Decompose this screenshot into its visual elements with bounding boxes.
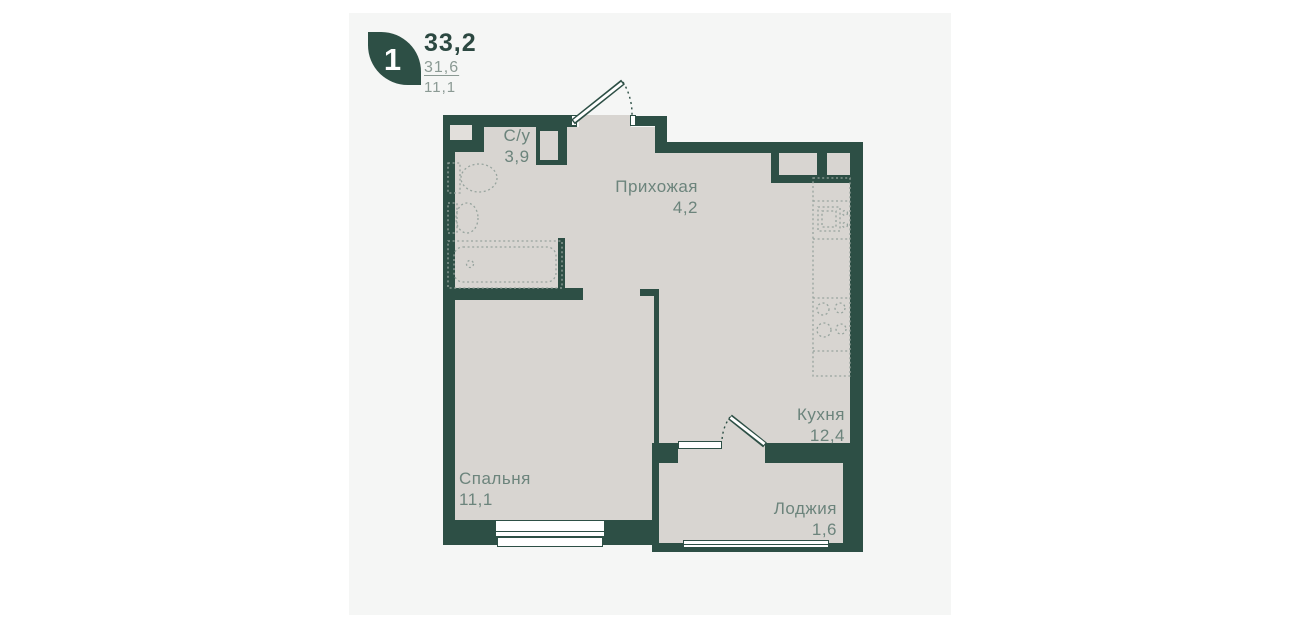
room-label-kitchen: Кухня 12,4 (733, 404, 845, 446)
kitchen-sink-icon (818, 207, 848, 231)
stove-icon (817, 303, 846, 337)
room-area: 11,1 (459, 489, 531, 510)
area-total: 33,2 (424, 31, 477, 56)
room-name: Прихожая (578, 176, 698, 197)
room-area: 4,2 (578, 197, 698, 218)
entrance-door-icon (573, 82, 632, 122)
leaf-rooms-count-icon: 1 (368, 32, 421, 85)
floorplan-card[interactable]: 1 33,2 31,6 11,1 (349, 13, 951, 615)
room-name: Спальня (459, 468, 531, 489)
rooms-count: 1 (384, 42, 401, 78)
room-name: Кухня (733, 404, 845, 425)
kitchen-counter-icon (813, 178, 850, 376)
floor-plan: С/у 3,9 Прихожая 4,2 Кухня 12,4 Спальня … (443, 113, 863, 553)
bathtub-icon (448, 241, 562, 288)
room-label-bedroom: Спальня 11,1 (459, 468, 531, 510)
washbasin-icon (448, 203, 478, 233)
room-name: С/у (487, 125, 547, 146)
room-area: 3,9 (487, 146, 547, 167)
toilet-icon (448, 163, 497, 193)
room-label-loggia: Лоджия 1,6 (725, 498, 837, 540)
page: 1 33,2 31,6 11,1 (0, 0, 1301, 630)
room-area: 12,4 (733, 425, 845, 446)
room-label-bathroom: С/у 3,9 (487, 125, 547, 167)
room-area: 1,6 (725, 519, 837, 540)
room-name: Лоджия (725, 498, 837, 519)
room-label-hallway: Прихожая 4,2 (578, 176, 698, 218)
